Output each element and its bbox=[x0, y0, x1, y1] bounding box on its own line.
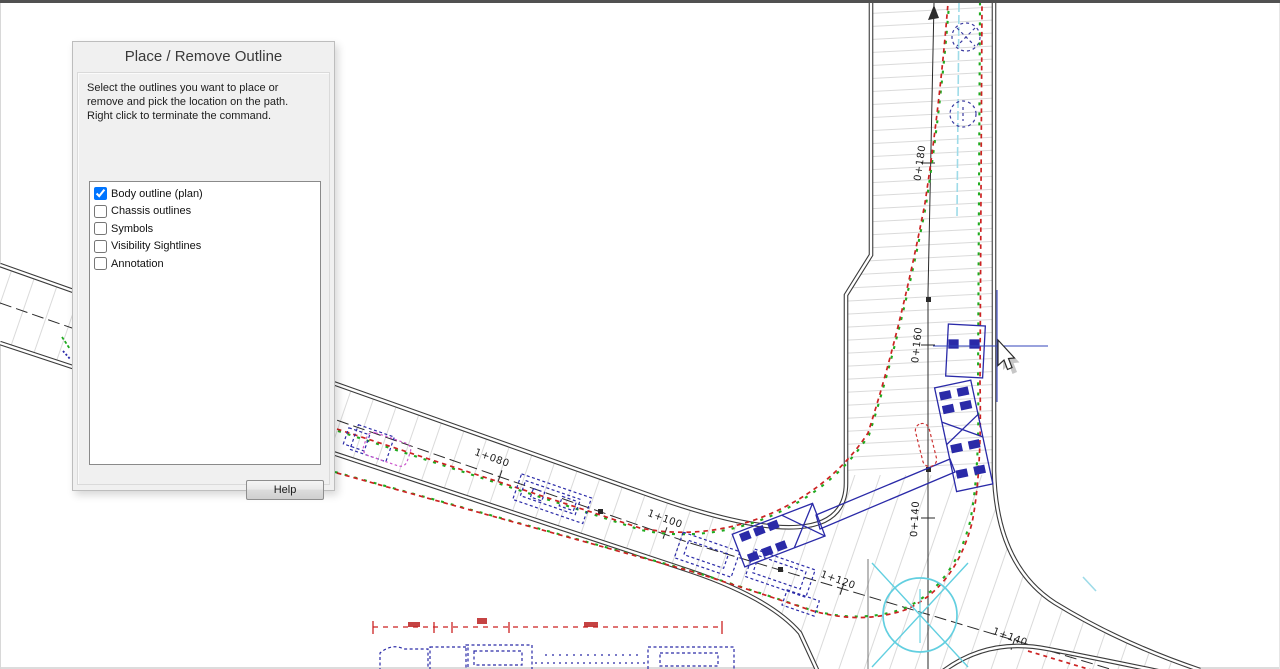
place-remove-outline-dialog: Place / Remove Outline Select the outlin… bbox=[72, 41, 335, 491]
outline-options-listbox[interactable]: Body outline (plan) Chassis outlines Sym… bbox=[89, 181, 321, 465]
instruction-line: Right click to terminate the command. bbox=[87, 109, 321, 123]
application-window: 0+180 0+160 0+140 1+080 1+100 1+120 1+14… bbox=[0, 0, 1280, 669]
option-label: Visibility Sightlines bbox=[111, 240, 201, 252]
option-symbols[interactable]: Symbols bbox=[90, 220, 320, 238]
dialog-title: Place / Remove Outline bbox=[73, 42, 334, 72]
option-annotation[interactable]: Annotation bbox=[90, 255, 320, 273]
option-label: Annotation bbox=[111, 258, 164, 270]
station-label: 0+140 bbox=[909, 501, 922, 538]
option-chassis-outlines[interactable]: Chassis outlines bbox=[90, 203, 320, 221]
annotation-checkbox[interactable] bbox=[94, 257, 107, 270]
visibility-sightlines-checkbox[interactable] bbox=[94, 240, 107, 253]
symbols-checkbox[interactable] bbox=[94, 222, 107, 235]
body-outline-plan-checkbox[interactable] bbox=[94, 187, 107, 200]
option-label: Symbols bbox=[111, 223, 153, 235]
option-label: Body outline (plan) bbox=[111, 188, 203, 200]
option-label: Chassis outlines bbox=[111, 205, 191, 217]
help-button[interactable]: Help bbox=[246, 480, 324, 500]
option-body-outline-plan[interactable]: Body outline (plan) bbox=[90, 185, 320, 203]
dialog-body: Select the outlines you want to place or… bbox=[77, 72, 330, 485]
vertical-road-surface bbox=[846, 3, 994, 475]
instruction-line: Select the outlines you want to place or bbox=[87, 81, 321, 95]
instruction-line: remove and pick the location on the path… bbox=[87, 95, 321, 109]
bottom-path-preview-red bbox=[373, 618, 722, 634]
mouse-cursor bbox=[998, 340, 1020, 374]
bottom-vehicle-outlines-blue bbox=[380, 645, 734, 669]
chassis-outlines-checkbox[interactable] bbox=[94, 205, 107, 218]
option-visibility-sightlines[interactable]: Visibility Sightlines bbox=[90, 238, 320, 256]
dialog-instructions: Select the outlines you want to place or… bbox=[78, 73, 329, 123]
